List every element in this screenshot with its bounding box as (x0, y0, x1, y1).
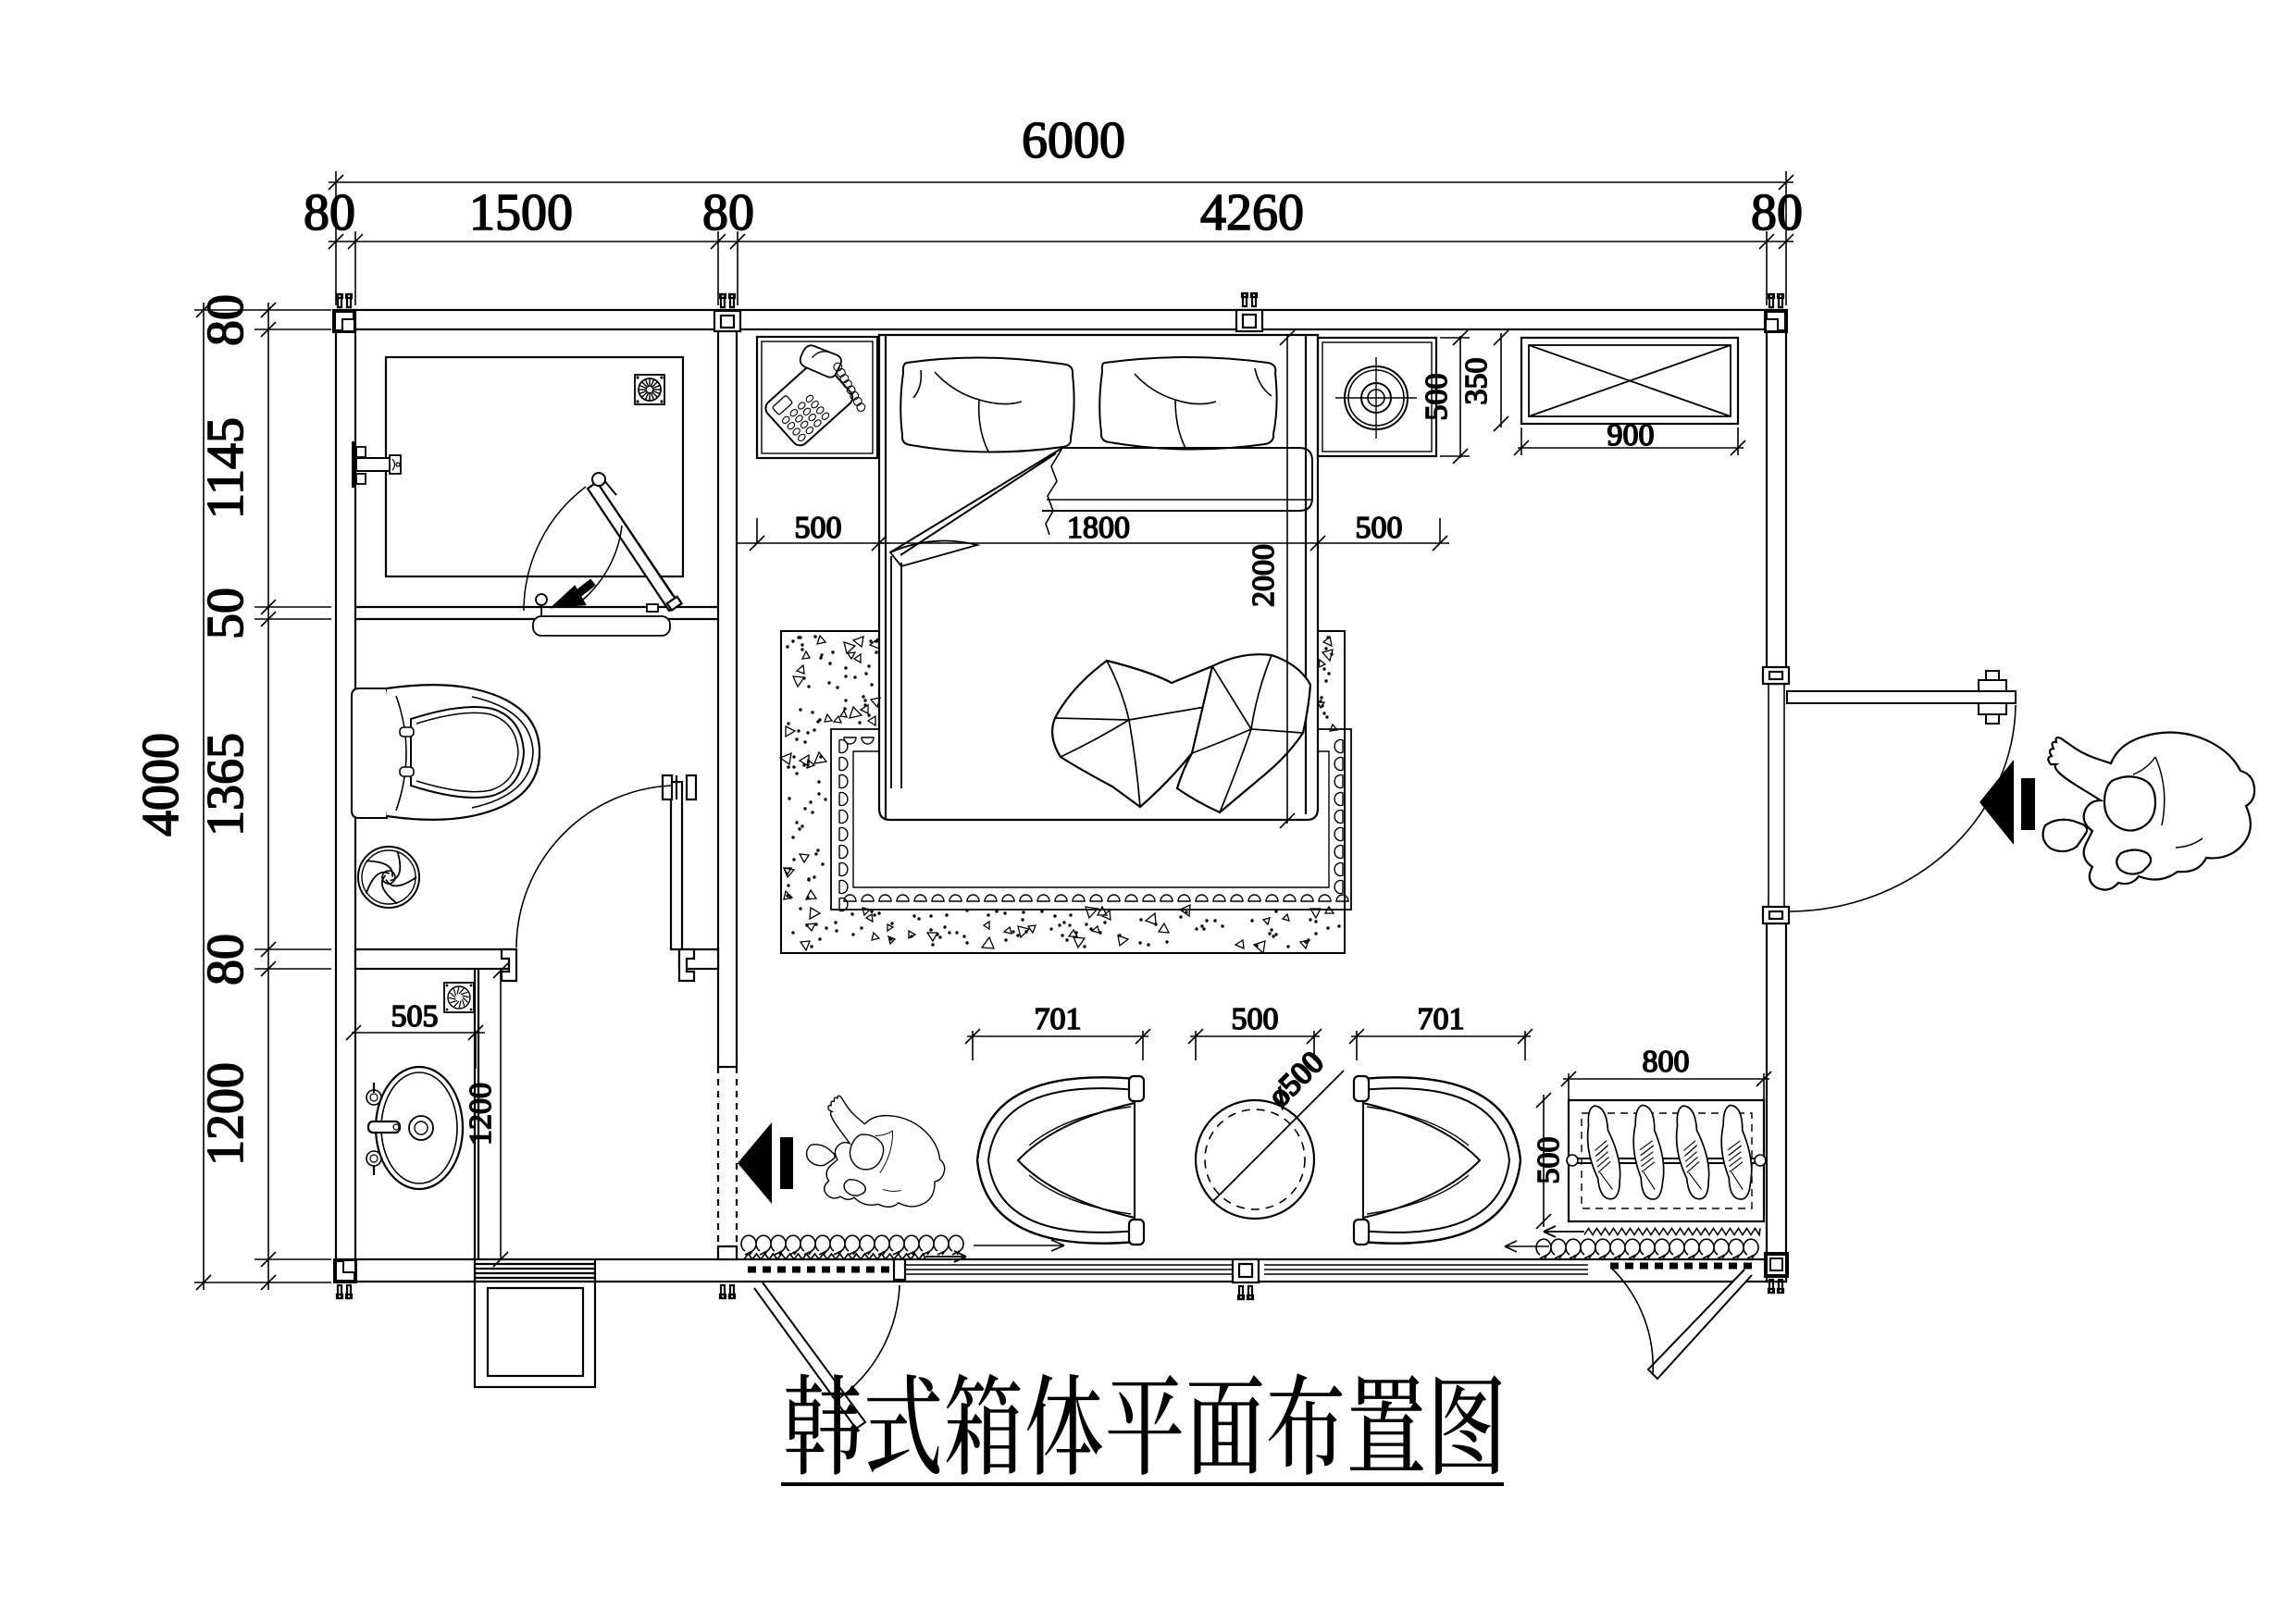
svg-text:505: 505 (391, 999, 439, 1034)
svg-text:2000: 2000 (1247, 544, 1281, 607)
svg-text:350: 350 (1459, 358, 1494, 405)
svg-text:1800: 1800 (1067, 511, 1130, 545)
svg-text:1200: 1200 (197, 1062, 254, 1166)
svg-text:80: 80 (304, 184, 355, 242)
svg-text:1200: 1200 (464, 1083, 498, 1146)
svg-text:900: 900 (1607, 418, 1655, 452)
svg-text:4260: 4260 (1200, 184, 1304, 242)
svg-text:500: 500 (1532, 1137, 1566, 1184)
svg-text:4000: 4000 (132, 733, 190, 836)
svg-text:500: 500 (1232, 1002, 1279, 1036)
svg-text:6000: 6000 (1022, 112, 1125, 169)
svg-text:1365: 1365 (197, 733, 254, 836)
svg-text:500: 500 (1420, 374, 1454, 421)
svg-text:701: 701 (1035, 1002, 1082, 1036)
svg-text:701: 701 (1418, 1002, 1465, 1036)
svg-text:80: 80 (197, 294, 254, 346)
svg-text:80: 80 (197, 934, 254, 985)
svg-text:1145: 1145 (197, 417, 254, 519)
svg-text:800: 800 (1643, 1045, 1690, 1079)
svg-text:1500: 1500 (469, 184, 573, 242)
svg-text:80: 80 (702, 184, 754, 242)
svg-text:500: 500 (795, 511, 842, 545)
svg-text:50: 50 (197, 588, 254, 639)
svg-text:80: 80 (1751, 184, 1803, 242)
svg-text:500: 500 (1356, 511, 1403, 545)
